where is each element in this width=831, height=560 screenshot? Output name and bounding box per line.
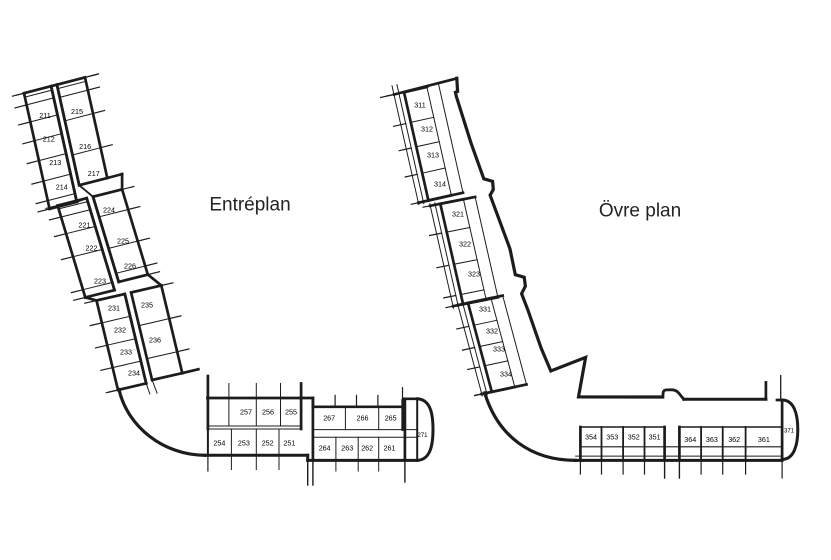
svg-text:233: 233: [120, 348, 132, 357]
svg-text:226: 226: [124, 262, 136, 271]
svg-text:353: 353: [606, 433, 618, 442]
svg-text:351: 351: [649, 433, 661, 442]
svg-text:266: 266: [357, 414, 369, 423]
svg-text:371: 371: [784, 429, 795, 435]
svg-text:323: 323: [468, 270, 480, 279]
svg-text:354: 354: [585, 433, 597, 442]
svg-text:333: 333: [493, 345, 505, 354]
svg-text:217: 217: [88, 169, 100, 178]
svg-text:256: 256: [262, 408, 274, 417]
svg-text:364: 364: [684, 435, 696, 444]
svg-text:363: 363: [706, 435, 718, 444]
svg-text:215: 215: [71, 107, 83, 116]
svg-text:212: 212: [43, 135, 55, 144]
svg-text:352: 352: [628, 433, 640, 442]
svg-text:216: 216: [79, 142, 91, 151]
svg-text:261: 261: [384, 444, 396, 453]
svg-text:271: 271: [417, 433, 428, 439]
svg-text:362: 362: [728, 435, 740, 444]
svg-text:334: 334: [500, 370, 512, 379]
svg-text:312: 312: [421, 125, 433, 134]
svg-text:361: 361: [758, 435, 770, 444]
svg-text:252: 252: [262, 439, 274, 448]
svg-text:211: 211: [39, 111, 50, 120]
svg-text:262: 262: [361, 444, 373, 453]
svg-text:313: 313: [427, 151, 439, 160]
svg-text:Entréplan: Entréplan: [209, 195, 290, 216]
svg-text:265: 265: [385, 414, 397, 423]
svg-text:232: 232: [114, 326, 126, 335]
svg-text:225: 225: [117, 237, 129, 246]
svg-text:255: 255: [285, 408, 297, 417]
svg-text:213: 213: [49, 158, 61, 167]
svg-text:332: 332: [486, 327, 498, 336]
svg-text:236: 236: [149, 336, 161, 345]
svg-text:221: 221: [79, 221, 91, 230]
svg-text:224: 224: [103, 206, 115, 215]
svg-text:231: 231: [108, 304, 120, 313]
svg-text:331: 331: [479, 305, 491, 314]
svg-text:Övre plan: Övre plan: [599, 201, 681, 222]
svg-text:322: 322: [459, 240, 471, 249]
svg-text:267: 267: [323, 414, 335, 423]
svg-text:214: 214: [56, 183, 68, 192]
svg-text:235: 235: [141, 301, 153, 310]
svg-text:263: 263: [341, 444, 353, 453]
svg-text:234: 234: [128, 369, 140, 378]
svg-text:222: 222: [86, 244, 98, 253]
svg-text:223: 223: [94, 277, 106, 286]
svg-text:254: 254: [213, 439, 225, 448]
svg-text:251: 251: [283, 439, 295, 448]
svg-text:253: 253: [238, 439, 250, 448]
svg-text:314: 314: [434, 180, 446, 189]
svg-text:311: 311: [414, 101, 425, 110]
svg-text:264: 264: [319, 444, 331, 453]
svg-text:257: 257: [240, 408, 252, 417]
svg-text:321: 321: [452, 210, 464, 219]
